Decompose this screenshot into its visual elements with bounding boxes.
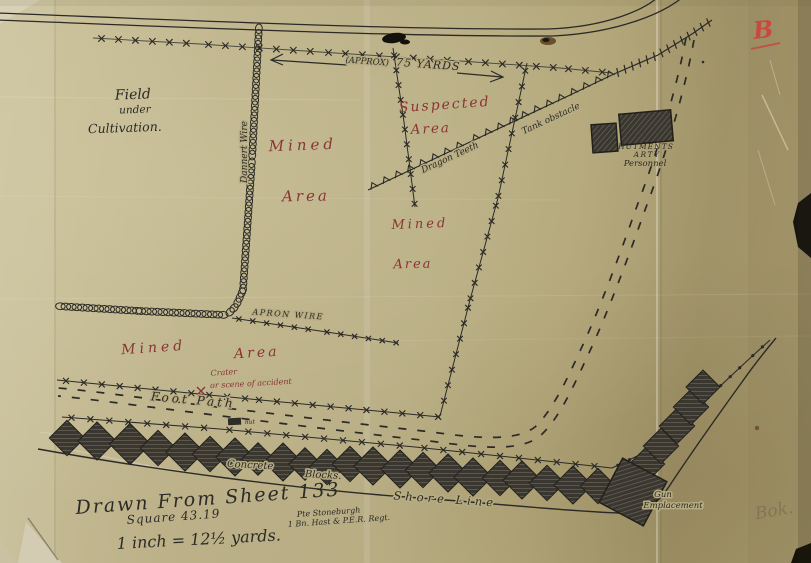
left-edge-band [0, 0, 54, 563]
label-dannert-wire: Dannert Wire [240, 121, 250, 184]
title-scale: 1 inch = 12½ yards. [116, 525, 281, 553]
label-hutments-2: ARTY [633, 150, 661, 159]
fence-dot [738, 366, 741, 369]
label-apron-wire: APRON WIRE [251, 307, 324, 321]
dragon-tooth-chevron [393, 169, 403, 178]
label-mined-mid-2: Area [392, 257, 432, 273]
label-field-2: under [119, 103, 152, 116]
red-letter-b: B [751, 14, 775, 45]
barbed-wire-x-mark [476, 265, 482, 271]
label-hutments-3: Personnel [623, 159, 667, 169]
dannert-coil-loop [55, 303, 65, 310]
hutment-large [619, 110, 674, 145]
label-mined-left-2: Area [280, 187, 330, 206]
minefield-sketch-map: Field under Cultivation. Mined Area Susp… [0, 0, 811, 563]
foot-path-track [58, 38, 694, 447]
dragon-tooth-mark [544, 98, 554, 107]
crease-h2 [0, 196, 560, 200]
dragon-tooth-chevron [605, 69, 615, 78]
label-mined-bottom-2: Area [232, 344, 280, 362]
label-gun-1: Gun [654, 490, 672, 500]
arrow-left-segment [272, 60, 347, 65]
dannert-wire-coil [55, 24, 262, 319]
hut-block [228, 418, 241, 426]
dragon-tooth-mark [556, 93, 566, 102]
fence-dot [751, 354, 754, 357]
label-hut: hut [245, 418, 256, 426]
spot-2 [702, 61, 705, 64]
label-gun-2: Emplacement [642, 501, 703, 511]
barbed-wire-x-mark [485, 234, 491, 240]
label-75-yards: 75 YARDS [396, 56, 461, 73]
barbed-wire-x-mark [493, 203, 499, 209]
dragon-tooth-chevron [593, 75, 603, 84]
dragon-tooth-mark [593, 75, 603, 84]
dragon-tooth-chevron [381, 175, 391, 184]
label-crater-1: Crater [210, 367, 238, 378]
barbed-wire-x-mark [489, 218, 495, 224]
concrete-block [78, 422, 116, 460]
label-tank-obstacle: Tank obstacle [521, 101, 582, 137]
label-field-3: Cultivation. [88, 119, 162, 137]
label-mined-mid-1: Mined [390, 216, 448, 233]
wire-line [232, 318, 398, 343]
dragon-tooth-mark [605, 69, 615, 78]
dragon-tooth-mark [568, 87, 578, 96]
label-field-1: Field [114, 86, 151, 103]
label-foot-path: Foot Path [149, 389, 236, 410]
title-block: Drawn From Sheet 133 Square 43.19 1 inch… [74, 479, 391, 553]
dragon-tooth-chevron [531, 104, 541, 113]
dragon-tooth-mark [531, 104, 541, 113]
label-shore-line: Shore Line [393, 488, 497, 509]
dragon-tooth-chevron [568, 87, 578, 96]
track-dash-outer [58, 40, 694, 447]
label-suspected-2: Area [408, 120, 451, 138]
barbed-wire-x-mark [480, 249, 486, 255]
label-crater-2: or scene of accident [210, 377, 293, 390]
label-mined-left-1: Mined [267, 135, 337, 155]
top-edge-shadow [0, 0, 811, 6]
brown-stain-core [543, 38, 550, 42]
label-mined-bottom-1: Mined [120, 338, 187, 359]
dragon-tooth-chevron [519, 110, 529, 119]
wire-line-long [440, 63, 528, 416]
label-suspected-1: Suspected [398, 94, 491, 116]
barbed-wire-x-mark [472, 280, 478, 286]
dragon-tooth-mark [483, 127, 493, 136]
dragon-tooth-mark [381, 175, 391, 184]
label-approx: (APPROX) [345, 55, 389, 69]
dannert-coil-loop [232, 297, 242, 309]
dragon-tooth-chevron [581, 81, 591, 90]
dragon-tooth-chevron [495, 121, 505, 130]
scanned-minefield-map: { "annotations": { "field": { "line1": "… [0, 0, 811, 563]
right-edge-shadow [798, 0, 811, 563]
dragon-tooth-mark [495, 121, 505, 130]
dragon-tooth-chevron [483, 127, 493, 136]
label-dragon-teeth: Dragon Teeth [419, 141, 480, 177]
dragon-tooth-mark [581, 81, 591, 90]
dragon-tooth-chevron [556, 93, 566, 102]
dragon-tooth-mark [519, 110, 529, 119]
dragon-tooth-mark [393, 169, 403, 178]
fence-dot [761, 345, 764, 348]
dannert-coil-loop [237, 287, 247, 299]
arrow-head-left [271, 54, 283, 65]
ink-blot-small [400, 40, 410, 45]
fence-dot [729, 375, 732, 378]
spot-1 [755, 426, 759, 430]
hutment-small [591, 123, 618, 153]
dragon-tooth-chevron [544, 98, 554, 107]
